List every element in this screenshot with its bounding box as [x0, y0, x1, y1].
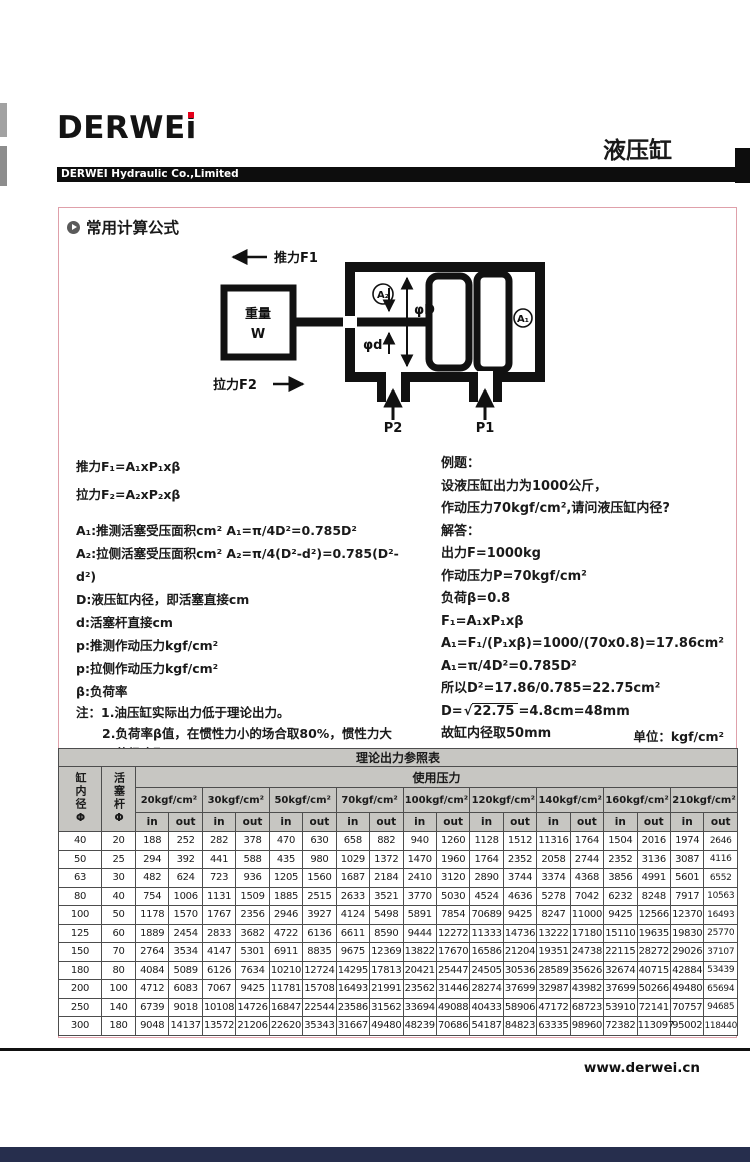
- force-value-cell: 47172: [537, 998, 570, 1017]
- force-value-cell: 4524: [470, 887, 503, 906]
- force-value-cell: 3856: [604, 869, 637, 888]
- force-value-cell: 4636: [503, 887, 536, 906]
- out-column-header: out: [370, 813, 403, 832]
- force-value-cell: 2454: [169, 924, 202, 943]
- force-value-cell: 723: [202, 869, 235, 888]
- force-value-cell: 42884: [671, 961, 704, 980]
- force-value-cell: 113097: [637, 1017, 670, 1036]
- bore-diameter-cell: 150: [59, 943, 102, 962]
- force-value-cell: 21206: [236, 1017, 269, 1036]
- force-value-cell: 4124: [336, 906, 369, 925]
- force-value-cell: 5601: [671, 869, 704, 888]
- force-value-cell: 1029: [336, 850, 369, 869]
- bore-diameter-cell: 125: [59, 924, 102, 943]
- force-value-cell: 29026: [671, 943, 704, 962]
- force-value-cell: 1960: [436, 850, 469, 869]
- force-value-cell: 32987: [537, 980, 570, 999]
- force-value-cell: 94685: [704, 998, 738, 1017]
- piston: [429, 276, 469, 368]
- force-value-cell: 1974: [671, 832, 704, 851]
- force-value-cell: 1885: [269, 887, 302, 906]
- in-column-header: in: [537, 813, 570, 832]
- force-value-cell: 19351: [537, 943, 570, 962]
- symbol-definitions: A₁:推测活塞受压面积cm² A₁=π/4D²=0.785D²A₂:拉侧活塞受压…: [76, 519, 406, 703]
- force-value-cell: 12369: [370, 943, 403, 962]
- section-title: 常用计算公式: [86, 216, 179, 238]
- force-value-cell: 1205: [269, 869, 302, 888]
- force-value-cell: 49480: [370, 1017, 403, 1036]
- force-value-cell: 22620: [269, 1017, 302, 1036]
- force-value-cell: 11781: [269, 980, 302, 999]
- force-value-cell: 84823: [503, 1017, 536, 1036]
- force-value-cell: 4147: [202, 943, 235, 962]
- force-value-cell: 72141: [637, 998, 670, 1017]
- rod-diameter-cell: 100: [102, 980, 136, 999]
- force-value-cell: 5278: [537, 887, 570, 906]
- force-value-cell: 1687: [336, 869, 369, 888]
- force-value-cell: 10108: [202, 998, 235, 1017]
- force-value-cell: 294: [136, 850, 169, 869]
- page-title: 液压缸: [603, 131, 672, 165]
- formula-line: 推力F₁=A₁xP₁xβ: [76, 453, 406, 481]
- table-row: 1005011781570176723562946392741245498589…: [59, 906, 738, 925]
- force-value-cell: 16493: [336, 980, 369, 999]
- force-value-cell: 15708: [303, 980, 336, 999]
- force-value-cell: 21204: [503, 943, 536, 962]
- force-value-cell: 9018: [169, 998, 202, 1017]
- force-value-cell: 11316: [537, 832, 570, 851]
- force-value-cell: 9425: [236, 980, 269, 999]
- pressure-column-header: 100kgf/cm²: [403, 788, 470, 813]
- force-value-cell: 31446: [436, 980, 469, 999]
- force-value-cell: 1509: [236, 887, 269, 906]
- force-value-cell: 25770: [704, 924, 738, 943]
- force-value-cell: 22115: [604, 943, 637, 962]
- force-value-cell: 16586: [470, 943, 503, 962]
- force-value-cell: 2646: [704, 832, 738, 851]
- output-table: 理论出力参照表 缸内径Φ 活塞杆Φ 使用压力 20kgf/cm²30kgf/cm…: [58, 748, 738, 1036]
- force-value-cell: 22544: [303, 998, 336, 1017]
- area-a1-label: A₁: [517, 314, 529, 325]
- force-value-cell: 588: [236, 850, 269, 869]
- footer-divider: [0, 1048, 750, 1051]
- rod-diameter-cell: 140: [102, 998, 136, 1017]
- force-value-cell: 70689: [470, 906, 503, 925]
- rod-diameter-cell: 20: [102, 832, 136, 851]
- example-question-line: 作动压力70kgf/cm²,请问液压缸内径?: [441, 498, 731, 521]
- force-value-cell: 58906: [503, 998, 536, 1017]
- table-row: 3001809048141371357221206226203534331667…: [59, 1017, 738, 1036]
- force-value-cell: 17180: [570, 924, 603, 943]
- force-value-cell: 4116: [704, 850, 738, 869]
- force-value-cell: 1767: [202, 906, 235, 925]
- force-value-cell: 282: [202, 832, 235, 851]
- force-value-cell: 936: [236, 869, 269, 888]
- bore-diameter-cell: 200: [59, 980, 102, 999]
- formula-block: 推力F₁=A₁xP₁xβ拉力F₂=A₂xP₂xβ A₁:推测活塞受压面积cm² …: [76, 453, 406, 765]
- table-row: 1256018892454283336824722613666118590944…: [59, 924, 738, 943]
- example-work-line: 出力F=1000kg: [441, 543, 731, 566]
- force-value-cell: 980: [303, 850, 336, 869]
- force-value-cell: 1560: [303, 869, 336, 888]
- force-value-cell: 7042: [570, 887, 603, 906]
- rod-diameter-cell: 80: [102, 961, 136, 980]
- in-column-header: in: [604, 813, 637, 832]
- force-value-cell: 658: [336, 832, 369, 851]
- force-value-cell: 482: [136, 869, 169, 888]
- force-value-cell: 72382: [604, 1017, 637, 1036]
- cylinder-diagram: 推力F1 重量 W 拉力F2 A₂ A₁ φD φd P2: [177, 248, 577, 433]
- force-value-cell: 35343: [303, 1017, 336, 1036]
- table-title: 理论出力参照表: [59, 749, 738, 767]
- pressure-header-row: 20kgf/cm²30kgf/cm²50kgf/cm²70kgf/cm²100k…: [59, 788, 738, 813]
- force-value-cell: 3120: [436, 869, 469, 888]
- force-value-cell: 470: [269, 832, 302, 851]
- table-row: 2501406739901810108147261684722544235863…: [59, 998, 738, 1017]
- rod-diameter-cell: 30: [102, 869, 136, 888]
- out-column-header: out: [169, 813, 202, 832]
- section-bullet-icon: [67, 221, 80, 234]
- bore-diameter-cell: 100: [59, 906, 102, 925]
- example-question: 设液压缸出力为1000公斤，作动压力70kgf/cm²,请问液压缸内径?: [441, 476, 731, 521]
- example-answer-label: 解答：: [441, 521, 731, 544]
- force-value-cell: 2184: [370, 869, 403, 888]
- force-value-cell: 40715: [637, 961, 670, 980]
- table-title-row: 理论出力参照表: [59, 749, 738, 767]
- force-value-cell: 43982: [570, 980, 603, 999]
- formula-definition-line: p:拉侧作动压力kgf/cm²: [76, 657, 406, 680]
- page: DERWEi 液压缸 DERWEI Hydraulic Co.,Limited …: [0, 0, 750, 1162]
- in-column-header: in: [269, 813, 302, 832]
- force-value-cell: 4722: [269, 924, 302, 943]
- brand-logo: DERWEi: [57, 110, 197, 146]
- company-bar: DERWEI Hydraulic Co.,Limited: [57, 167, 750, 182]
- in-column-header: in: [470, 813, 503, 832]
- rod-diameter-cell: 25: [102, 850, 136, 869]
- force-value-cell: 1764: [470, 850, 503, 869]
- pull-force-label: 拉力F2: [213, 377, 257, 393]
- scan-artifact: [0, 103, 7, 137]
- pressure-column-header: 210kgf/cm²: [671, 788, 738, 813]
- force-value-cell: 5089: [169, 961, 202, 980]
- example-work-line: F₁=A₁xP₁xβ: [441, 611, 731, 634]
- force-value-cell: 2356: [236, 906, 269, 925]
- force-value-cell: 5030: [436, 887, 469, 906]
- table-row: 6330482624723936120515601687218424103120…: [59, 869, 738, 888]
- force-value-cell: 10563: [704, 887, 738, 906]
- bore-diameter-cell: 40: [59, 832, 102, 851]
- force-value-cell: 12370: [671, 906, 704, 925]
- force-value-cell: 2515: [303, 887, 336, 906]
- force-value-cell: 7854: [436, 906, 469, 925]
- bore-dimension-label: φD: [414, 303, 435, 318]
- push-force-label: 推力F1: [274, 250, 318, 266]
- force-value-cell: 30536: [503, 961, 536, 980]
- example-sqrt-line: D=√22.75=4.8cm=48mm: [441, 701, 731, 724]
- force-value-cell: 28274: [470, 980, 503, 999]
- out-column-header: out: [570, 813, 603, 832]
- force-value-cell: 53910: [604, 998, 637, 1017]
- force-value-cell: 1570: [169, 906, 202, 925]
- force-value-cell: 12272: [436, 924, 469, 943]
- website-url: www.derwei.cn: [584, 1060, 700, 1076]
- force-value-cell: 3770: [403, 887, 436, 906]
- force-value-cell: 6232: [604, 887, 637, 906]
- port-p2-label: P2: [384, 421, 403, 433]
- port-p1-label: P1: [476, 421, 495, 433]
- out-column-header: out: [637, 813, 670, 832]
- pressure-column-header: 160kgf/cm²: [604, 788, 671, 813]
- force-value-cell: 2352: [604, 850, 637, 869]
- brand-logo-i: i: [186, 110, 197, 146]
- force-value-cell: 1260: [436, 832, 469, 851]
- force-value-cell: 6911: [269, 943, 302, 962]
- force-value-cell: 1889: [136, 924, 169, 943]
- port-p1-stub: [469, 376, 478, 402]
- rod-diameter-cell: 50: [102, 906, 136, 925]
- force-value-cell: 2352: [503, 850, 536, 869]
- force-value-cell: 435: [269, 850, 302, 869]
- force-value-cell: 25447: [436, 961, 469, 980]
- table-row: 2001004712608370679425117811570816493219…: [59, 980, 738, 999]
- force-value-cell: 2016: [637, 832, 670, 851]
- force-value-cell: 252: [169, 832, 202, 851]
- company-name: DERWEI Hydraulic Co.,Limited: [61, 168, 239, 180]
- unit-note: 单位：kgf/cm²: [633, 726, 724, 745]
- force-value-cell: 23562: [403, 980, 436, 999]
- force-value-cell: 95002: [671, 1017, 704, 1036]
- example-question-line: 设液压缸出力为1000公斤，: [441, 476, 731, 499]
- force-value-cell: 16493: [704, 906, 738, 925]
- table-row: 5025294392441588435980102913721470196017…: [59, 850, 738, 869]
- port-p2-stub: [377, 376, 386, 402]
- force-value-cell: 17670: [436, 943, 469, 962]
- formula-note-line: 注：1.油压缸实际出力低于理论出力。: [76, 703, 406, 724]
- force-value-cell: 98960: [570, 1017, 603, 1036]
- force-value-cell: 9675: [336, 943, 369, 962]
- force-value-cell: 9444: [403, 924, 436, 943]
- pressure-column-header: 120kgf/cm²: [470, 788, 537, 813]
- force-value-cell: 6552: [704, 869, 738, 888]
- force-value-cell: 40433: [470, 998, 503, 1017]
- output-table-body: 4020188252282378470630658882940126011281…: [59, 832, 738, 1036]
- force-value-cell: 13222: [537, 924, 570, 943]
- force-value-cell: 2764: [136, 943, 169, 962]
- formula-definition-line: β:负荷率: [76, 680, 406, 703]
- bore-diameter-cell: 180: [59, 961, 102, 980]
- bore-diameter-cell: 80: [59, 887, 102, 906]
- force-formulas: 推力F₁=A₁xP₁xβ拉力F₂=A₂xP₂xβ: [76, 453, 406, 509]
- bottom-bar: [0, 1147, 750, 1162]
- example-title: 例题：: [441, 453, 731, 476]
- force-value-cell: 2890: [470, 869, 503, 888]
- rear-chamber: [477, 274, 509, 370]
- example-work-line: 所以D²=17.86/0.785=22.75cm²: [441, 678, 731, 701]
- force-value-cell: 7067: [202, 980, 235, 999]
- content-box: 常用计算公式 推力F1 重量 W 拉力F2 A₂ A₁: [58, 207, 737, 1038]
- force-value-cell: 68723: [570, 998, 603, 1017]
- bore-diameter-header: 缸内径Φ: [59, 767, 102, 832]
- out-column-header: out: [436, 813, 469, 832]
- force-value-cell: 9425: [604, 906, 637, 925]
- force-value-cell: 31562: [370, 998, 403, 1017]
- force-value-cell: 32674: [604, 961, 637, 980]
- force-value-cell: 2058: [537, 850, 570, 869]
- in-column-header: in: [202, 813, 235, 832]
- force-value-cell: 1131: [202, 887, 235, 906]
- force-value-cell: 188: [136, 832, 169, 851]
- pressure-column-header: 30kgf/cm²: [202, 788, 269, 813]
- sqrt-suffix: =4.8cm=48mm: [518, 704, 629, 719]
- in-column-header: in: [336, 813, 369, 832]
- example-work-line: 作动压力P=70kgf/cm²: [441, 566, 731, 589]
- pressure-column-header: 20kgf/cm²: [136, 788, 203, 813]
- rod-diameter-cell: 40: [102, 887, 136, 906]
- force-value-cell: 70686: [436, 1017, 469, 1036]
- force-value-cell: 1504: [604, 832, 637, 851]
- force-value-cell: 630: [303, 832, 336, 851]
- force-value-cell: 10210: [269, 961, 302, 980]
- weight-box: [224, 288, 293, 357]
- force-value-cell: 1178: [136, 906, 169, 925]
- port-p1-opening: [478, 371, 493, 383]
- port-p1-stub: [493, 376, 502, 402]
- pressure-column-header: 70kgf/cm²: [336, 788, 403, 813]
- out-column-header: out: [503, 813, 536, 832]
- force-value-cell: 4084: [136, 961, 169, 980]
- force-value-cell: 1512: [503, 832, 536, 851]
- force-value-cell: 12724: [303, 961, 336, 980]
- rod-diameter-cell: 70: [102, 943, 136, 962]
- force-value-cell: 23586: [336, 998, 369, 1017]
- force-value-cell: 33694: [403, 998, 436, 1017]
- example-work-line: A₁=π/4D²=0.785D²: [441, 656, 731, 679]
- rod-dimension-label: φd: [363, 338, 382, 353]
- force-value-cell: 1764: [570, 832, 603, 851]
- force-value-cell: 2633: [336, 887, 369, 906]
- force-value-cell: 49480: [671, 980, 704, 999]
- rod-diameter-cell: 180: [102, 1017, 136, 1036]
- force-value-cell: 14295: [336, 961, 369, 980]
- force-value-cell: 15110: [604, 924, 637, 943]
- pressure-column-header: 50kgf/cm²: [269, 788, 336, 813]
- force-value-cell: 35626: [570, 961, 603, 980]
- force-value-cell: 940: [403, 832, 436, 851]
- force-value-cell: 11333: [470, 924, 503, 943]
- area-a2-label: A₂: [377, 290, 389, 301]
- section-header: 常用计算公式: [67, 216, 179, 238]
- force-value-cell: 378: [236, 832, 269, 851]
- force-value-cell: 2744: [570, 850, 603, 869]
- pressure-group-header: 使用压力: [136, 767, 738, 788]
- force-value-cell: 7634: [236, 961, 269, 980]
- formula-line: 拉力F₂=A₂xP₂xβ: [76, 481, 406, 509]
- formula-definition-line: d:活塞杆直接cm: [76, 611, 406, 634]
- force-value-cell: 37107: [704, 943, 738, 962]
- force-value-cell: 19830: [671, 924, 704, 943]
- force-value-cell: 24738: [570, 943, 603, 962]
- example-work-line: 负荷β=0.8: [441, 588, 731, 611]
- formula-definition-line: A₁:推测活塞受压面积cm² A₁=π/4D²=0.785D²: [76, 519, 406, 542]
- force-value-cell: 8590: [370, 924, 403, 943]
- force-value-cell: 28589: [537, 961, 570, 980]
- example-work-line: A₁=F₁/(P₁xβ)=1000/(70x0.8)=17.86cm²: [441, 633, 731, 656]
- bore-diameter-cell: 250: [59, 998, 102, 1017]
- force-value-cell: 54187: [470, 1017, 503, 1036]
- port-p2-opening: [386, 371, 401, 383]
- force-value-cell: 118440: [704, 1017, 738, 1036]
- force-value-cell: 4712: [136, 980, 169, 999]
- force-value-cell: 1372: [370, 850, 403, 869]
- force-value-cell: 882: [370, 832, 403, 851]
- force-value-cell: 21991: [370, 980, 403, 999]
- force-value-cell: 3744: [503, 869, 536, 888]
- force-value-cell: 624: [169, 869, 202, 888]
- in-column-header: in: [136, 813, 169, 832]
- force-value-cell: 20421: [403, 961, 436, 980]
- force-value-cell: 9425: [503, 906, 536, 925]
- force-value-cell: 14726: [236, 998, 269, 1017]
- force-value-cell: 1470: [403, 850, 436, 869]
- force-value-cell: 70757: [671, 998, 704, 1017]
- sqrt-prefix: D=: [441, 704, 463, 719]
- force-value-cell: 28272: [637, 943, 670, 962]
- force-value-cell: 16847: [269, 998, 302, 1017]
- force-value-cell: 1006: [169, 887, 202, 906]
- table-row: 8040754100611311509188525152633352137705…: [59, 887, 738, 906]
- out-column-header: out: [303, 813, 336, 832]
- rod-opening: [343, 316, 357, 328]
- force-value-cell: 6136: [303, 924, 336, 943]
- force-value-cell: 24505: [470, 961, 503, 980]
- force-value-cell: 4368: [570, 869, 603, 888]
- force-value-cell: 3534: [169, 943, 202, 962]
- bore-diameter-cell: 300: [59, 1017, 102, 1036]
- force-value-cell: 441: [202, 850, 235, 869]
- sqrt-value: 22.75: [472, 703, 518, 719]
- scan-artifact: [0, 146, 7, 186]
- force-value-cell: 392: [169, 850, 202, 869]
- force-value-cell: 50266: [637, 980, 670, 999]
- force-value-cell: 6126: [202, 961, 235, 980]
- in-column-header: in: [403, 813, 436, 832]
- force-value-cell: 7917: [671, 887, 704, 906]
- force-value-cell: 4991: [637, 869, 670, 888]
- rod-diameter-header: 活塞杆Φ: [102, 767, 136, 832]
- force-value-cell: 65694: [704, 980, 738, 999]
- force-value-cell: 6611: [336, 924, 369, 943]
- force-value-cell: 6739: [136, 998, 169, 1017]
- force-value-cell: 49088: [436, 998, 469, 1017]
- out-column-header: out: [236, 813, 269, 832]
- force-value-cell: 8248: [637, 887, 670, 906]
- force-value-cell: 19635: [637, 924, 670, 943]
- force-value-cell: 31667: [336, 1017, 369, 1036]
- out-column-header: out: [704, 813, 738, 832]
- force-value-cell: 2410: [403, 869, 436, 888]
- force-value-cell: 63335: [537, 1017, 570, 1036]
- pressure-column-header: 140kgf/cm²: [537, 788, 604, 813]
- bore-diameter-cell: 63: [59, 869, 102, 888]
- force-value-cell: 53439: [704, 961, 738, 980]
- force-value-cell: 13572: [202, 1017, 235, 1036]
- table-row: 1507027643534414753016911883596751236913…: [59, 943, 738, 962]
- force-value-cell: 12566: [637, 906, 670, 925]
- formula-note-line: 2.负荷率β值，在惯性力小的场合取80%，惯性力大: [76, 724, 406, 745]
- in-column-header: in: [671, 813, 704, 832]
- force-value-cell: 37699: [503, 980, 536, 999]
- example-work: 出力F=1000kg作动压力P=70kgf/cm²负荷β=0.8F₁=A₁xP₁…: [441, 543, 731, 701]
